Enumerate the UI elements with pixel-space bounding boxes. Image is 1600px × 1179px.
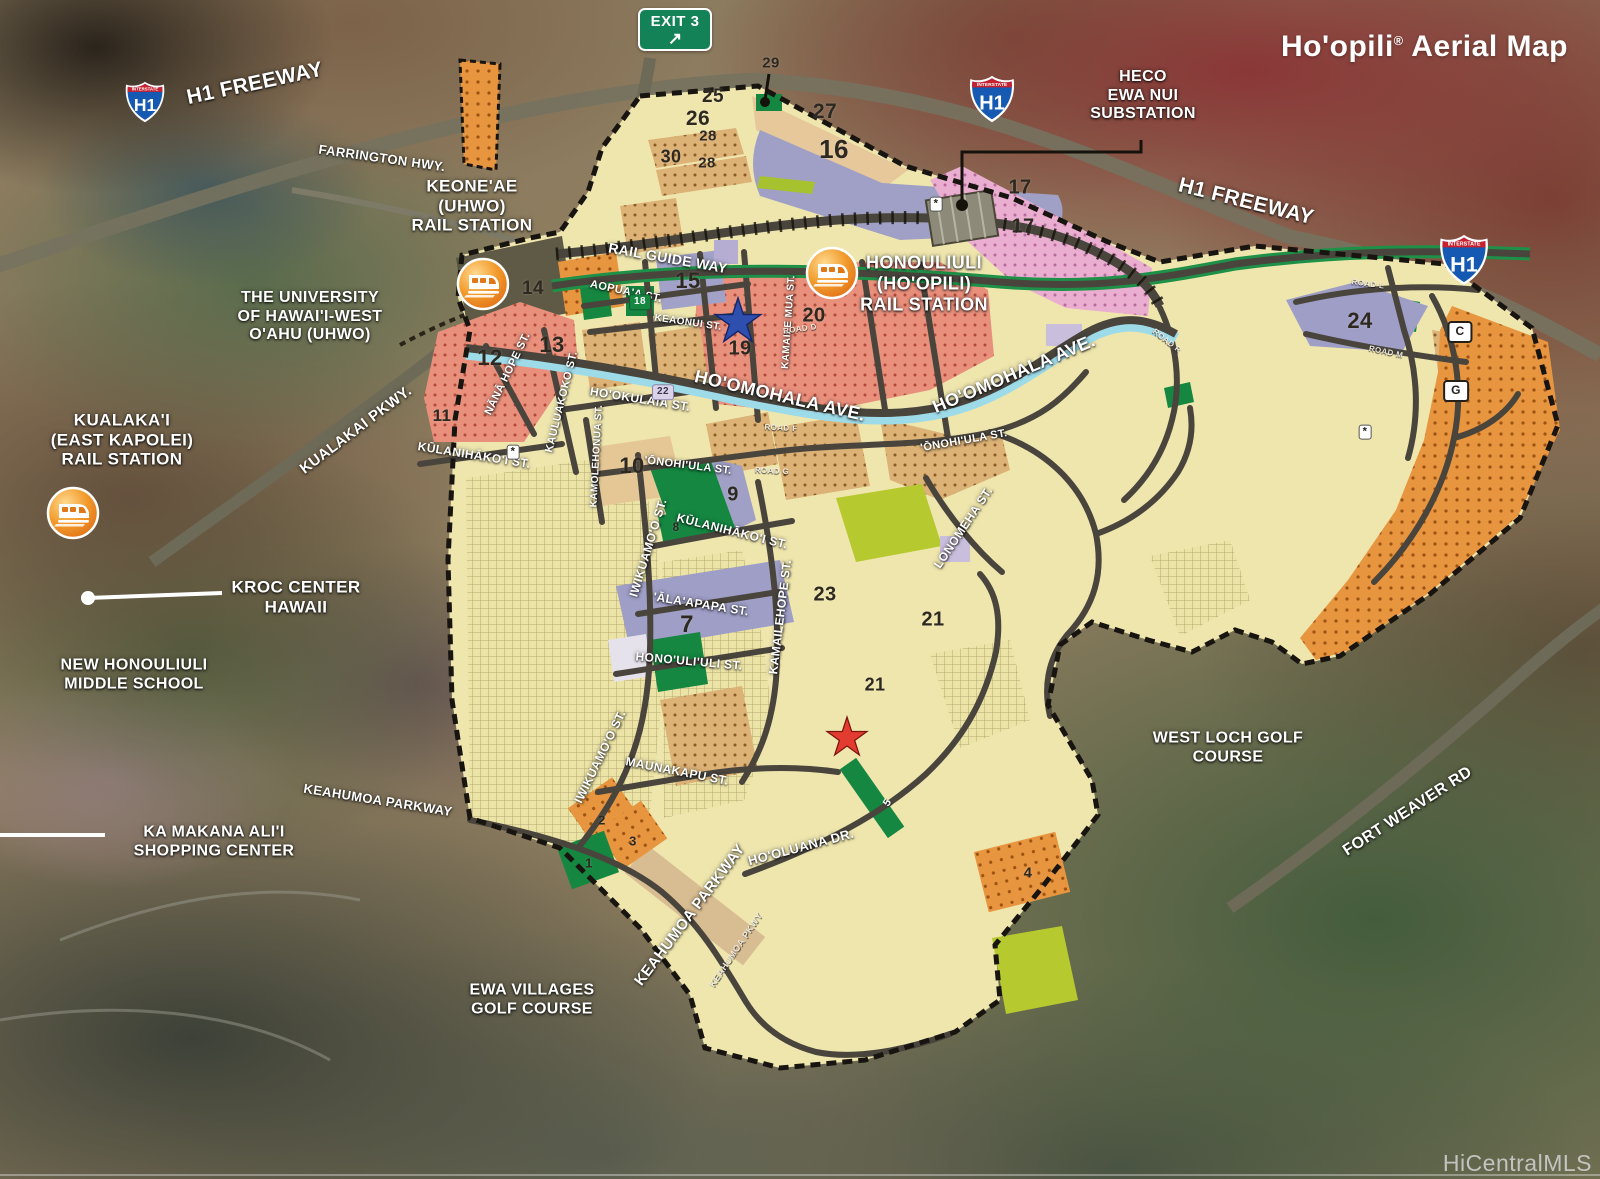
- kroc-leader-line: [88, 593, 222, 598]
- kualakai-rail-station-icon: [48, 488, 98, 538]
- title-name: Ho'opili: [1281, 30, 1394, 63]
- h1-shield-icon: INTERSTATE H1: [968, 74, 1016, 129]
- exit-arrow-icon: ↗: [640, 30, 710, 47]
- shield-top-text: INTERSTATE: [1448, 242, 1481, 248]
- title-rest: Aerial Map: [1404, 30, 1568, 63]
- shield-label-text: H1: [979, 92, 1005, 114]
- shield-label-text: H1: [1450, 251, 1478, 276]
- bottom-edge-line: [0, 1174, 1600, 1176]
- watermark: HiCentralMLS: [1443, 1150, 1592, 1177]
- shield-top-text: INTERSTATE: [977, 82, 1008, 88]
- heco-dot: [956, 199, 968, 211]
- h1-shield-icon: INTERSTATE H1: [1438, 233, 1490, 292]
- title-registered-mark: ®: [1394, 34, 1404, 48]
- shield-top-text: INTERSTATE: [132, 86, 159, 91]
- parcel29-dot: [760, 97, 770, 107]
- master-plan-overlay: [0, 0, 1600, 1179]
- kroc-dot: [81, 591, 95, 605]
- honouliuli-rail-station-icon: [807, 248, 857, 298]
- map-title: Ho'opili® Aerial Map: [1281, 30, 1568, 64]
- hoopili-aerial-map: H1 FREEWAYFARRINGTON HWY.H1 FREEWAYHECO …: [0, 0, 1600, 1179]
- exit-3-sign: EXIT 3 ↗: [638, 8, 712, 51]
- exit-sign-text: EXIT 3: [640, 13, 710, 30]
- h1-shield-icon: INTERSTATE H1: [124, 80, 166, 129]
- keoneae-rail-station-icon: [458, 259, 508, 309]
- shield-label-text: H1: [134, 95, 157, 115]
